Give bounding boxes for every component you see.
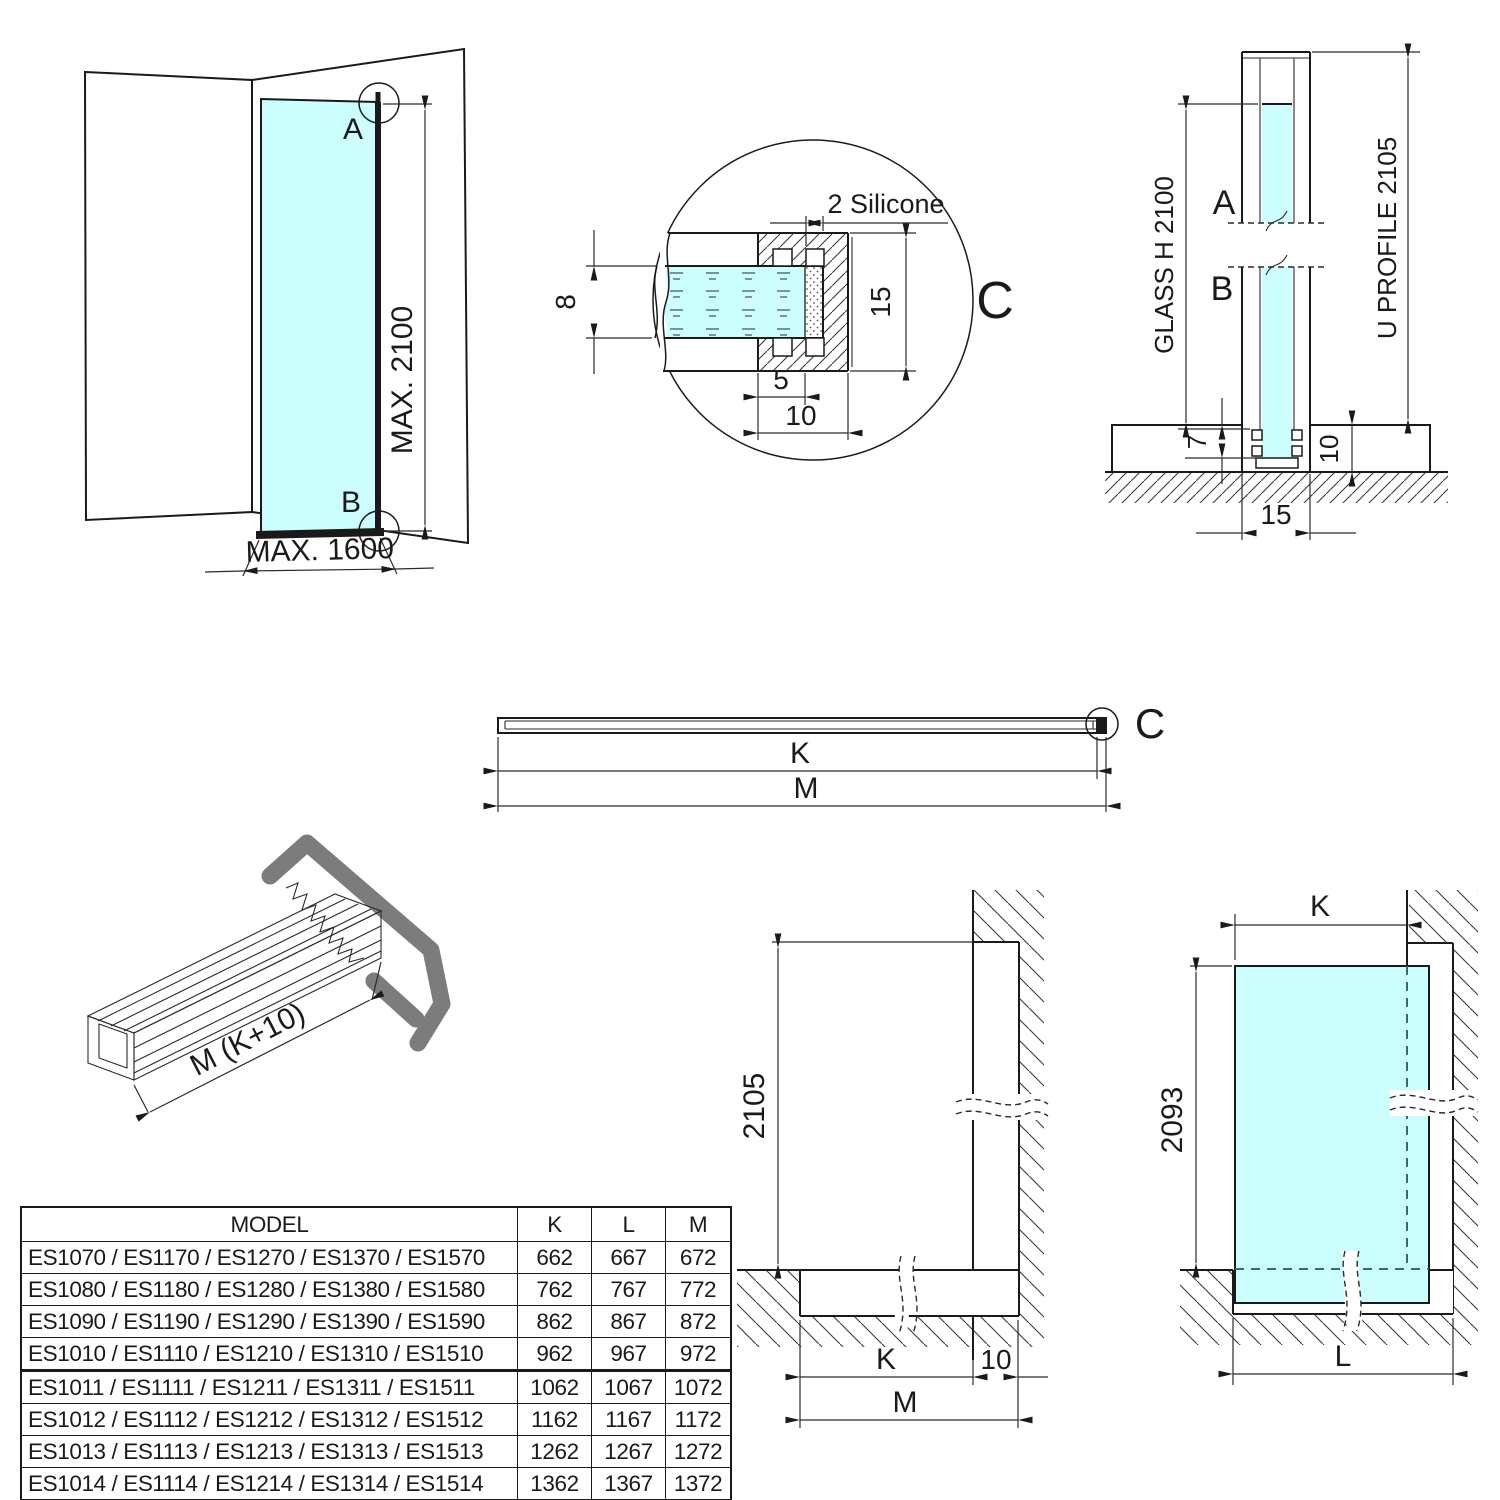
col-k: K [518,1207,592,1242]
dim-glass-height: GLASS H 2100 [1149,176,1179,354]
dim-profile-width: 15 [1260,499,1291,530]
view-elevation-l: K 2093 L [1156,890,1478,1385]
dim-l-elev: L [1335,1340,1352,1373]
dim-bottom-gap: 7 [1182,435,1212,449]
table-row: ES1012 / ES1112 / ES1212 / ES1312 / ES15… [21,1404,731,1436]
dim-base-height: 10 [1314,435,1344,464]
col-model: MODEL [21,1207,518,1242]
section-label-a: A [1213,184,1236,222]
section-label-b: B [1211,270,1234,308]
dim-height-2105: 2105 [738,1073,771,1140]
dim-k-bar: K [790,737,810,770]
table-row: ES1090 / ES1190 / ES1290 / ES1390 / ES15… [21,1306,731,1338]
dim-profile-height: 15 [865,286,896,317]
left-wall [85,72,252,520]
dim-k-elev-l: K [1310,890,1330,923]
dim-silicone: 2 Silicone [827,189,944,219]
table-row: ES1013 / ES1113 / ES1213 / ES1313 / ES15… [21,1436,731,1468]
dim-height-2093: 2093 [1156,1087,1189,1154]
view-corner-perspective: A B MAX. 2100 MAX. 1600 [85,49,468,576]
table-row: ES1080 / ES1180 / ES1280 / ES1380 / ES15… [21,1274,731,1306]
dim-glass-thickness: 8 [550,294,581,310]
glass-upper [1262,104,1292,223]
table-row: ES1010 / ES1110 / ES1210 / ES1310 / ES15… [21,1338,731,1371]
glass-section [664,266,805,338]
detail-ref: C [976,272,1014,330]
label-a: A [343,113,363,146]
bar-detail-ref: C [1135,700,1165,747]
table-row: ES1011 / ES1111 / ES1211 / ES1311 / ES15… [21,1371,731,1404]
glass-lower [1262,267,1292,458]
view-vertical-section: A B GLASS H 2100 U PROFILE 2105 7 10 [1105,52,1448,540]
dim-k-elev: K [876,1343,896,1376]
dim-max-height: MAX. 2100 [386,306,419,454]
col-l: L [592,1207,666,1242]
floor-hatch [800,1316,1044,1347]
col-m: M [666,1207,732,1242]
drawing-sheet: A B MAX. 2100 MAX. 1600 C [0,0,1500,1500]
dim-m-elev: M [893,1386,918,1419]
table-row: ES1014 / ES1114 / ES1214 / ES1314 / ES15… [21,1468,731,1500]
dim-total-depth: 10 [785,400,816,431]
view-detail-c: C 8 [550,140,1014,460]
dim-m-bar: M [794,772,819,805]
spec-header-row: MODEL K L M [21,1207,731,1242]
spec-table: MODEL K L M ES1070 / ES1170 / ES1270 / E… [20,1206,732,1500]
glass-panel-elev [1235,966,1429,1303]
profile-end-cap [1096,719,1105,732]
dim-uprofile-height: U PROFILE 2105 [1372,137,1402,339]
label-b: B [341,486,361,519]
table-row: ES1070 / ES1170 / ES1270 / ES1370 / ES15… [21,1242,731,1274]
glass-panel [261,99,377,535]
profile-bar [498,718,1106,733]
dim-10-elev: 10 [980,1344,1011,1375]
view-isometric-profile: M (K+10) [88,843,442,1112]
wall-hatch [974,890,1044,942]
wall-hatch-l [1409,890,1478,943]
dim-front-depth: 5 [773,364,789,395]
profile-back-wall [823,266,848,338]
setting-block [1256,458,1298,468]
view-profile-bar: C K M [498,700,1165,812]
silicone-seal [805,266,823,338]
view-elevation-k: 2105 K 10 M [737,890,1048,1428]
dim-max-width: MAX. 1600 [245,532,394,569]
